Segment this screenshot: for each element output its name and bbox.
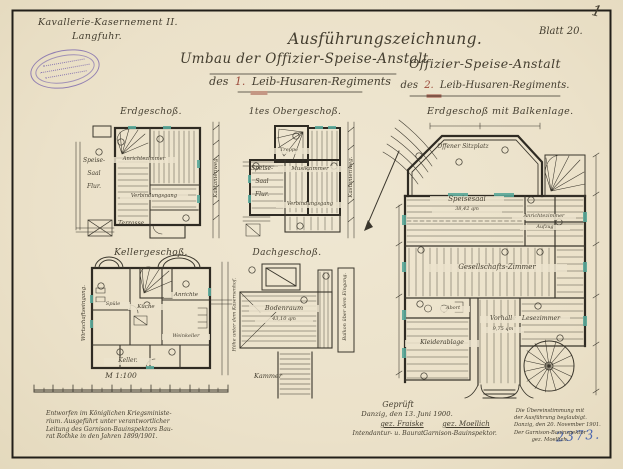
sheet-number: Blatt 20. bbox=[539, 26, 583, 37]
room-label-treppe: Treppe bbox=[269, 148, 309, 154]
plan-title-obergeschoss: 1tes Obergeschoß. bbox=[245, 107, 345, 117]
project-subtitle-right: des 2. Leib-Husaren-Regiments. bbox=[385, 80, 585, 91]
certification-line: Die Übereinstimmung mit bbox=[514, 408, 586, 415]
design-note-line: Leitung des Garnison-Bauinspektors Bau- bbox=[46, 426, 173, 434]
room-label-musikzimmer: Musikzimmer bbox=[278, 166, 342, 172]
side-label-wirtschaftseingang: Wirtschaftseingang. bbox=[81, 271, 87, 355]
certification-line: Danzig, den 20. November 1901. bbox=[514, 422, 586, 429]
project-subtitle-left: des 1. Leib-Husaren-Regiments bbox=[180, 76, 420, 88]
certification-line: der Ausführung beglaubigt. bbox=[514, 415, 586, 422]
room-label-gesellschaftszimmer: Gesellschafts-Zimmer bbox=[427, 264, 567, 272]
plan-title-erdgeschoss: Erdgeschoß. bbox=[111, 107, 191, 117]
drawing-sheet: 1 2373. Kavallerie-Kasernement II. Langf… bbox=[0, 0, 623, 469]
room-label-kammer: Kammer bbox=[240, 373, 296, 380]
regiment-suffix-left: Leib-Husaren-Regiments bbox=[252, 75, 391, 88]
room-label-keller: Keller. bbox=[104, 358, 152, 365]
project-title-right: Offizier-Speise-Anstalt bbox=[390, 57, 580, 71]
certification-note: Die Übereinstimmung mit der Ausführung b… bbox=[514, 408, 586, 444]
regiment-suffix-right: Leib-Husaren-Regiments. bbox=[440, 80, 570, 91]
room-label-verbindungsgang: Verbindungsgang bbox=[120, 194, 188, 200]
scale-label: M 1:100 bbox=[98, 372, 144, 380]
plan-title-balkenlage: Erdgeschoß mit Balkenlage. bbox=[427, 107, 567, 118]
design-note: Entworfen im Königlichen Kriegsministe- … bbox=[46, 410, 173, 441]
doc-type-title: Ausführungszeichnung. bbox=[288, 31, 460, 48]
approval-signature-right: gez. Moellich bbox=[436, 421, 496, 429]
plan-balkenlage-linework bbox=[383, 120, 599, 398]
side-label-kasernenhof: Höhe unter dem Kasernenhof. bbox=[232, 270, 237, 360]
plan-title-kellergeschoss: Kellergeschoß. bbox=[111, 248, 191, 258]
room-label-weinkeller: Weinkeller bbox=[162, 334, 210, 340]
plan-kellergeschoss-linework bbox=[90, 255, 232, 375]
design-note-line: rium. Ausgeführt unter verantwortlicher bbox=[46, 418, 173, 426]
side-label-balkon: Balkon über dem Eingang. bbox=[343, 262, 349, 352]
reference-arrow bbox=[364, 151, 399, 231]
room-label-lesezimmer: Lesezimmer bbox=[512, 316, 570, 323]
site-name-line1: Kavallerie-Kasernement II. bbox=[38, 18, 178, 29]
room-label-saal-og: Saal bbox=[246, 179, 278, 186]
room-label-kleiderablage: Kleiderablage bbox=[405, 340, 479, 347]
room-area-speisesaal: 38,42 qm bbox=[432, 207, 502, 213]
room-label-spuele: Spüle bbox=[96, 302, 130, 308]
site-name-line2: Langfuhr. bbox=[72, 32, 122, 43]
approval-title-left: Intendantur- u. Baurat. bbox=[350, 431, 428, 438]
regiment-number-left: 1. bbox=[235, 75, 246, 88]
room-label-flur-og: Flur. bbox=[244, 192, 280, 199]
regiment-number-right: 2. bbox=[424, 80, 434, 91]
regiment-prefix-left: des bbox=[209, 75, 228, 88]
street-label-obergeschoss: Kastanienweg. bbox=[348, 137, 354, 217]
street-label-erdgeschoss: Kastanienweg. bbox=[213, 137, 219, 217]
room-label-flur: Flur. bbox=[76, 184, 112, 191]
room-label-kueche: Küche bbox=[128, 304, 164, 310]
approval-title-right: Garnison-Bauinspektor. bbox=[418, 431, 502, 438]
room-area-bodenraum: 43,10 qm bbox=[255, 317, 313, 323]
stamp-text-line bbox=[45, 70, 87, 78]
room-label-abort: Abort bbox=[436, 306, 470, 312]
approval-heading: Geprüft bbox=[368, 401, 428, 410]
room-label-aufzug: Aufzug bbox=[520, 225, 570, 230]
approval-place-date: Danzig, den 13. Juni 1900. bbox=[352, 411, 462, 419]
room-label-anrichtezimmer: Anrichtezimmer bbox=[112, 157, 176, 163]
plan-title-dachgeschoss: Dachgeschoß. bbox=[247, 248, 327, 258]
approval-signature-left: gez. Fraiske bbox=[372, 421, 432, 429]
room-label-bodenraum: Bodenraum bbox=[249, 305, 319, 312]
regiment-prefix-right: des bbox=[401, 80, 418, 91]
room-label-anrichte: Anrichte bbox=[164, 292, 208, 298]
scale-bar bbox=[34, 385, 228, 392]
project-title-left: Umbau der Offizier-Speise-Anstalt bbox=[180, 52, 420, 67]
room-label-speise: Speise- bbox=[76, 158, 112, 165]
room-label-anrichtezimmer-big: Anrichtezimmer bbox=[512, 214, 576, 220]
room-label-speise-og: Speise- bbox=[244, 166, 280, 173]
room-label-sitzplatz: Offener Sitzplatz bbox=[420, 144, 506, 151]
certification-line: gez. Moellich. bbox=[514, 437, 586, 444]
certification-line: Der Garnison-Bauinspektor bbox=[514, 430, 586, 437]
room-label-speisesaal: Speisesaal bbox=[430, 196, 504, 204]
room-area-vorhalle: 9,75 qm bbox=[482, 327, 524, 333]
design-note-line: rat Rothke in den Jahren 1899/1901. bbox=[46, 433, 173, 441]
room-label-saal: Saal bbox=[78, 171, 110, 178]
room-label-verbindungsgang-og: Verbindungsgang bbox=[276, 202, 344, 208]
room-label-terrasse: Terrasse. bbox=[107, 221, 157, 228]
design-note-line: Entworfen im Königlichen Kriegsministe- bbox=[46, 410, 173, 418]
